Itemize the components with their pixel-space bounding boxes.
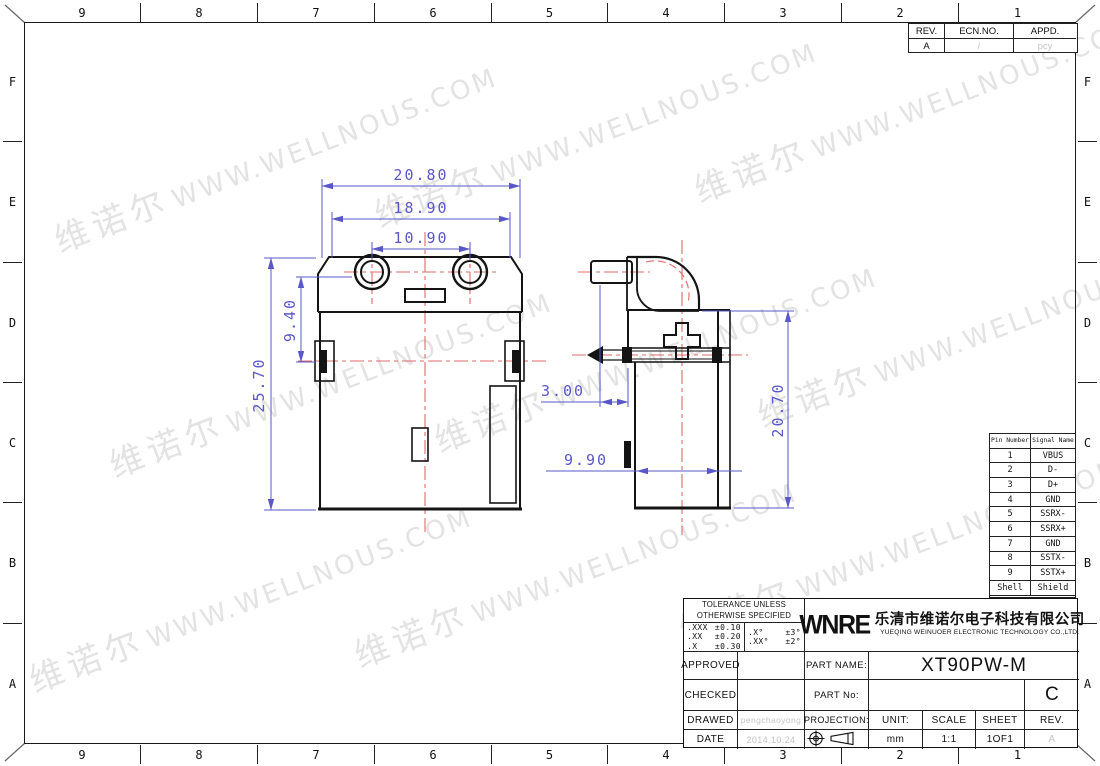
grid-col-label: 7: [258, 745, 375, 764]
pin-number: 1: [990, 449, 1031, 464]
drawed-label: DRAWED: [684, 711, 738, 730]
grid-row-label: A: [1078, 624, 1097, 744]
part-no-label: PART No:: [805, 680, 869, 711]
linear-tolerances: .XXX±0.10 .XX±0.20 .X±0.30: [684, 623, 745, 652]
grid-col-label: 8: [141, 745, 258, 764]
grid-row-label: B: [3, 503, 22, 624]
drawing-sheet: 维诺尔 WWW.WELLNOUS.COM 维诺尔 WWW.WELLNOUS.CO…: [0, 0, 1100, 766]
grid-col-label: 7: [258, 3, 375, 22]
sheet-label: SHEET: [976, 711, 1025, 730]
grid-row-label: F: [3, 22, 22, 142]
grid-row-label: D: [1078, 263, 1097, 383]
signal-name: SSRX+: [1031, 522, 1075, 537]
signal-name: SSTX+: [1031, 566, 1075, 581]
rev-header: REV.: [909, 24, 945, 39]
grid-row-label: D: [3, 263, 22, 383]
company-cell: WNRE 乐清市维诺尔电子科技有限公司 YUEQING WEINUOER ELE…: [805, 599, 1079, 652]
grid-col-label: 1: [959, 3, 1076, 22]
approved-value: [738, 652, 805, 680]
signal-name: GND: [1031, 537, 1075, 552]
grid-col-label: 5: [492, 3, 608, 22]
grid-row-label: C: [3, 383, 22, 503]
grid-row-label: C: [1078, 383, 1097, 503]
signal-name: Shield: [1031, 581, 1075, 596]
grid-col-label: 2: [842, 3, 959, 22]
rev-label: REV.: [1025, 711, 1079, 730]
part-name-value: XT90PW-M: [869, 652, 1079, 680]
rev-value: A: [909, 39, 945, 53]
date-value: 2014.10.24: [738, 730, 805, 749]
grid-col-label: 6: [375, 745, 492, 764]
company-logo: WNRE: [799, 609, 869, 640]
projection-label: PROJECTION:: [805, 711, 869, 730]
title-block: TOLERANCE UNLESS OTHERWISE SPECIFIED .XX…: [683, 598, 1078, 748]
signal-name: D+: [1031, 478, 1075, 493]
grid-col-label: 3: [725, 3, 842, 22]
part-name-label: PART NAME:: [805, 652, 869, 680]
grid-row-label: A: [3, 624, 22, 744]
signal-name: VBUS: [1031, 449, 1075, 464]
pin-number: 2: [990, 463, 1031, 478]
signal-name: GND: [1031, 493, 1075, 508]
pin-number: 4: [990, 493, 1031, 508]
ecn-value: /: [945, 39, 1014, 53]
unit-label: UNIT:: [869, 711, 923, 730]
grid-row-label: B: [1078, 503, 1097, 624]
drawed-value: pengchaoyong: [738, 711, 805, 730]
pin-number: Shell: [990, 581, 1031, 596]
third-angle-projection-icon: [805, 730, 869, 749]
unit-value: mm: [869, 730, 923, 749]
pin-number: 6: [990, 522, 1031, 537]
approved-label: APPROVED: [684, 652, 738, 680]
checked-label: CHECKED: [684, 680, 738, 711]
pin-col-header: Pin Number: [990, 434, 1031, 449]
pin-number: 8: [990, 552, 1031, 567]
grid-col-label: 4: [608, 3, 725, 22]
grid-row-label: E: [1078, 142, 1097, 263]
grid-col-label: 9: [24, 745, 141, 764]
angular-tolerances: .X°±3° .XX°±2°: [745, 623, 805, 652]
scale-label: SCALE: [923, 711, 976, 730]
appd-header: APPD.: [1014, 24, 1076, 39]
pin-number: 5: [990, 507, 1031, 522]
grid-col-label: 6: [375, 3, 492, 22]
grid-col-label: 8: [141, 3, 258, 22]
company-name-en: YUEQING WEINUOER ELECTRONIC TECHNOLOGY C…: [880, 629, 1079, 636]
appd-value: pcy: [1014, 39, 1076, 53]
grid-col-label: 9: [24, 3, 141, 22]
size-code: C: [1025, 680, 1079, 711]
date-label: DATE: [684, 730, 738, 749]
rev-value: A: [1025, 730, 1079, 749]
signal-col-header: Signal Name: [1031, 434, 1075, 449]
ecn-header: ECN.NO.: [945, 24, 1014, 39]
signal-name: D-: [1031, 463, 1075, 478]
tolerance-title: TOLERANCE UNLESS OTHERWISE SPECIFIED: [684, 599, 805, 623]
grid-row-label: F: [1078, 22, 1097, 142]
checked-value: [738, 680, 805, 711]
revision-table: REV. ECN.NO. APPD. A / pcy: [908, 23, 1078, 53]
part-no-value: [869, 680, 1025, 711]
pin-table: Pin Number Signal Name 1VBUS 2D- 3D+ 4GN…: [989, 433, 1076, 598]
grid-row-label: E: [3, 142, 22, 263]
scale-value: 1:1: [923, 730, 976, 749]
pin-number: 9: [990, 566, 1031, 581]
signal-name: SSRX-: [1031, 507, 1075, 522]
pin-number: 3: [990, 478, 1031, 493]
grid-col-label: 5: [492, 745, 608, 764]
pin-number: 7: [990, 537, 1031, 552]
signal-name: SSTX-: [1031, 552, 1075, 567]
sheet-value: 1OF1: [976, 730, 1025, 749]
company-name-cn: 乐清市维诺尔电子科技有限公司: [875, 613, 1085, 629]
